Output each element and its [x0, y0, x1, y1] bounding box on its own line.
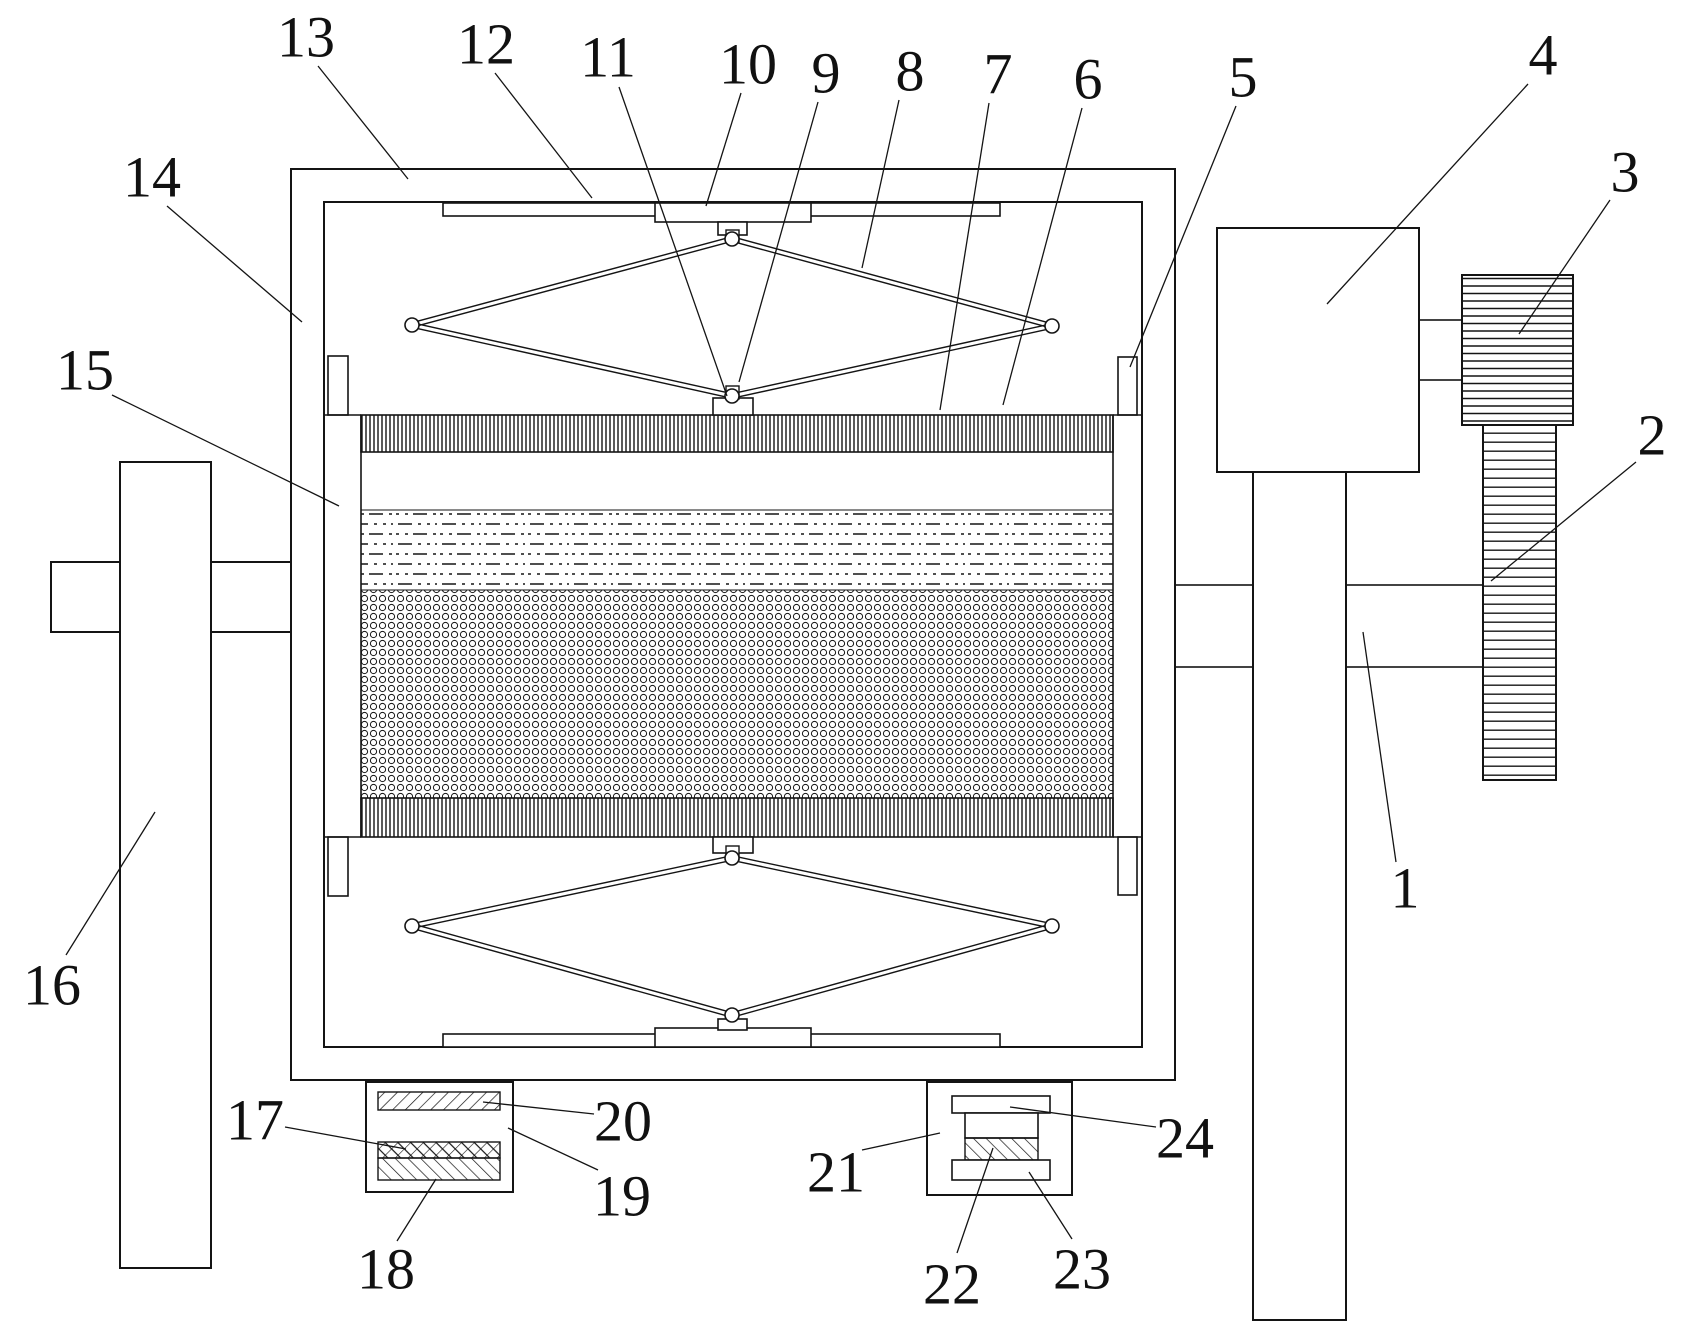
pivot-pin: [405, 318, 419, 332]
part-label-8: 8: [896, 39, 925, 104]
leader-line-18: [397, 1179, 436, 1241]
part-label-15: 15: [56, 338, 114, 403]
screen-strip-bottom: [361, 798, 1113, 837]
left-support-plate: [120, 462, 211, 1268]
damper-right-spacer: [965, 1113, 1038, 1138]
scissor-link: [732, 856, 1052, 924]
part-label-5: 5: [1229, 45, 1258, 110]
scissor-link: [412, 924, 732, 1013]
filter-ball-layer: [361, 590, 1113, 798]
scissor-link: [732, 328, 1052, 398]
part-label-3: 3: [1611, 140, 1640, 205]
part-label-23: 23: [1053, 1237, 1111, 1302]
part-label-7: 7: [984, 42, 1013, 107]
part-label-6: 6: [1074, 47, 1103, 112]
leader-line-4: [1327, 84, 1528, 304]
part-label-22: 22: [923, 1252, 981, 1317]
scissor-link: [732, 928, 1052, 1017]
part-label-11: 11: [580, 25, 636, 90]
scissor-link: [412, 323, 732, 394]
part-label-13: 13: [277, 5, 335, 70]
damper-right-elastic-pad: [965, 1138, 1038, 1160]
leader-line-23: [1029, 1172, 1072, 1239]
scissor-link: [732, 324, 1052, 394]
part-label-9: 9: [812, 41, 841, 106]
scissor-link: [412, 856, 732, 924]
part-label-16: 16: [23, 953, 81, 1018]
motor-output-shaft: [1419, 320, 1462, 380]
part-label-2: 2: [1638, 403, 1667, 468]
part-label-14: 14: [123, 145, 181, 210]
right-axle-shaft-inner: [1175, 585, 1253, 667]
drawing-canvas: 123456789101112131415161718192021222324: [0, 0, 1686, 1334]
left-axle-shaft: [211, 562, 291, 632]
motor-housing: [1217, 228, 1419, 472]
scissor-link: [732, 924, 1052, 1013]
pivot-pin: [405, 919, 419, 933]
top-mount-plate: [655, 203, 811, 222]
leader-line-16: [66, 812, 155, 955]
pivot-pin: [1045, 319, 1059, 333]
left-shaft-stub: [51, 562, 120, 632]
part-label-4: 4: [1529, 23, 1558, 88]
leader-line-5: [1130, 106, 1236, 367]
leader-line-8: [862, 100, 899, 268]
pivot-pin: [1045, 919, 1059, 933]
guide-block-bottom-right: [1118, 837, 1137, 895]
damper-right-bottom-plate: [952, 1160, 1050, 1180]
pivot-pin: [725, 851, 739, 865]
scissor-link: [732, 860, 1052, 928]
part-label-10: 10: [719, 32, 777, 97]
leader-line-11: [619, 87, 727, 396]
part-label-24: 24: [1156, 1106, 1214, 1171]
leader-line-17: [285, 1127, 406, 1149]
screen-strip-top: [361, 415, 1113, 452]
leader-line-14: [167, 206, 302, 322]
leader-line-7: [940, 103, 989, 410]
leader-line-13: [318, 66, 408, 179]
guide-block-bottom-left: [328, 837, 348, 896]
leader-line-12: [495, 73, 592, 198]
filter-dash-layer: [361, 510, 1113, 590]
leader-line-19: [508, 1128, 598, 1170]
scissor-link: [412, 928, 732, 1017]
guide-block-top-left: [328, 356, 348, 415]
scissor-link: [732, 241, 1052, 328]
part-label-1: 1: [1391, 856, 1420, 921]
pivot-pin: [725, 232, 739, 246]
leader-line-21: [862, 1133, 940, 1150]
pivot-pin: [725, 389, 739, 403]
scissor-link: [412, 327, 732, 398]
guide-block-top-right: [1118, 357, 1137, 415]
part-label-17: 17: [226, 1088, 284, 1153]
damper-left-top-pad: [378, 1092, 500, 1110]
part-label-19: 19: [593, 1164, 651, 1229]
right-support-column: [1253, 472, 1346, 1320]
scissor-link: [732, 237, 1052, 324]
drive-gear-small: [1462, 275, 1573, 425]
part-label-20: 20: [594, 1089, 652, 1154]
scissor-link: [412, 237, 732, 323]
leader-line-6: [1003, 108, 1082, 405]
part-label-18: 18: [357, 1237, 415, 1302]
drive-gear-large: [1483, 425, 1556, 780]
leader-line-15: [112, 395, 339, 506]
bottom-mount-plate: [655, 1028, 811, 1047]
scissor-link: [412, 241, 732, 327]
damper-left-bottom-pad: [378, 1158, 500, 1180]
part-label-21: 21: [807, 1140, 865, 1205]
patent-figure: 123456789101112131415161718192021222324: [0, 0, 1686, 1334]
scissor-link: [412, 860, 732, 928]
part-label-12: 12: [457, 12, 515, 77]
leader-line-10: [706, 93, 741, 206]
damper-left-mid-pad: [378, 1142, 500, 1158]
pivot-pin: [725, 1008, 739, 1022]
